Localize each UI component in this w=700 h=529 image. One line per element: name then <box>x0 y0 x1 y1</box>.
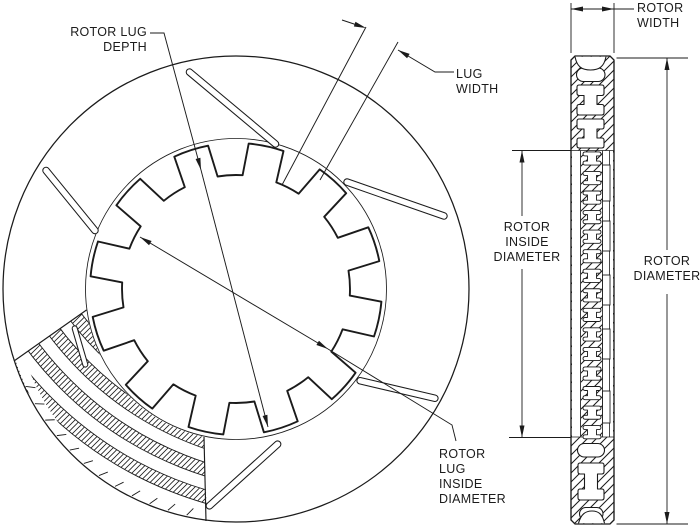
label-line: DIAMETER <box>485 250 569 265</box>
rotor-lug-notch-profile <box>91 144 382 435</box>
label-line: DIAMETER <box>625 269 700 284</box>
label-rotor-width: ROTOR WIDTH <box>637 1 683 31</box>
label-line: ROTOR <box>485 220 569 235</box>
label-line: ROTOR <box>625 254 700 269</box>
label-rotor-lug-depth: ROTOR LUG DEPTH <box>27 25 147 55</box>
label-line: INSIDE <box>439 477 506 492</box>
label-line: WIDTH <box>637 16 683 31</box>
label-line: DIAMETER <box>439 492 506 507</box>
rotor-slot <box>356 377 438 402</box>
label-line: INSIDE <box>485 235 569 250</box>
label-rotor-inside-diameter: ROTOR INSIDE DIAMETER <box>485 220 569 265</box>
label-line: WIDTH <box>456 82 498 97</box>
rotor-drawing <box>0 0 700 529</box>
label-line: ROTOR <box>439 447 506 462</box>
label-line: ROTOR <box>637 1 683 16</box>
rotor-dimension-diagram: ROTOR LUG DEPTH LUG WIDTH ROTOR WIDTH RO… <box>0 0 700 529</box>
label-line: DEPTH <box>27 40 147 55</box>
rotor-slot <box>185 68 280 149</box>
label-line: LUG <box>456 67 498 82</box>
label-lug-width: LUG WIDTH <box>456 67 498 97</box>
label-rotor-diameter: ROTOR DIAMETER <box>625 254 700 284</box>
label-rotor-lug-inside-diameter: ROTOR LUG INSIDE DIAMETER <box>439 447 506 507</box>
rotor-slot <box>41 166 99 235</box>
rotor-section-view <box>571 56 614 524</box>
label-line: ROTOR LUG <box>27 25 147 40</box>
front-dimensions <box>140 20 456 441</box>
rotor-slot <box>343 178 448 220</box>
label-line: LUG <box>439 462 506 477</box>
rotor-slot <box>205 440 282 511</box>
